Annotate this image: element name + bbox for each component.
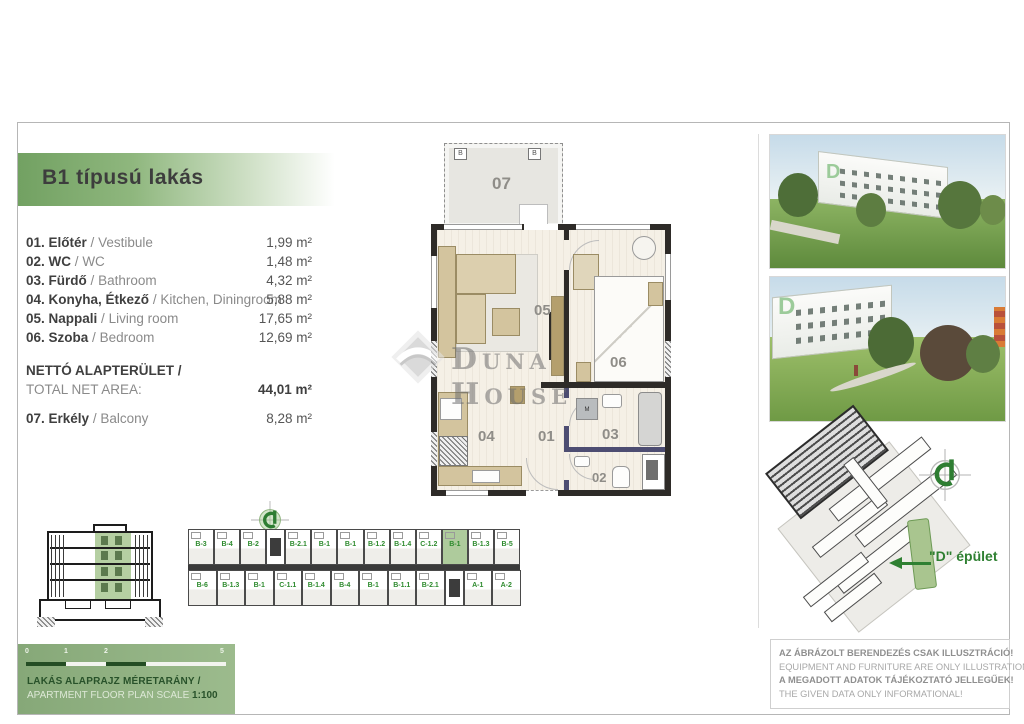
d-building-label: "D" épület xyxy=(929,548,998,564)
room-number-kitchen: 04 xyxy=(478,428,495,445)
room-area: 12,69 m² xyxy=(259,328,312,347)
scale-tick: 1 xyxy=(64,648,68,655)
stove xyxy=(439,436,468,466)
site-plan: "D" épület xyxy=(763,423,991,635)
sofa-seat xyxy=(456,254,516,294)
unit-cell: B-1.1 xyxy=(388,570,417,606)
room-number-wc: 02 xyxy=(592,470,606,485)
column-divider xyxy=(758,134,759,628)
building-d-letter: D xyxy=(826,161,840,184)
unit-label: B-1.2 xyxy=(365,541,389,548)
room-number-bathroom: 03 xyxy=(602,426,619,443)
tall-cabinet xyxy=(510,386,525,404)
unit-label: B-1.1 xyxy=(389,582,416,589)
room-label-hu: 01. Előtér xyxy=(26,235,87,250)
tree xyxy=(856,193,886,227)
unit-cell: B-4 xyxy=(331,570,360,606)
separator: / xyxy=(92,330,96,345)
tv-cabinet xyxy=(551,296,564,376)
room-label-hu: 06. Szoba xyxy=(26,330,88,345)
disclaimer-box: AZ ÁBRÁZOLT BERENDEZÉS CSAK ILLUSZTRÁCIÓ… xyxy=(770,639,1010,709)
window xyxy=(444,224,522,230)
separator: / xyxy=(93,411,97,426)
room-number-bedroom: 06 xyxy=(610,354,627,371)
tree xyxy=(868,317,914,369)
unit-cell: B-6 xyxy=(188,570,217,606)
room-area: 1,48 m² xyxy=(266,252,312,271)
window xyxy=(431,256,437,308)
sofa-back xyxy=(438,246,456,358)
unit-cell: B-1.4 xyxy=(390,529,416,565)
unit-label: B-1.4 xyxy=(303,582,330,589)
partition-wall xyxy=(564,480,569,490)
balcony-row: 07. Erkély / Balcony 8,28 m² xyxy=(26,409,312,428)
unit-label: B-2.1 xyxy=(286,541,310,548)
stairwell-cell xyxy=(445,570,464,606)
room-area: 1,99 m² xyxy=(266,233,312,252)
scale-caption-en: APARTMENT FLOOR PLAN SCALE 1:100 xyxy=(27,690,218,701)
bathroom-sink xyxy=(602,394,622,408)
unit-cell-highlighted: B-1 xyxy=(442,529,468,565)
unit-label: A-2 xyxy=(493,582,520,589)
building-render-photo-1: D xyxy=(769,134,1006,269)
partition-wall xyxy=(564,388,569,398)
toilet xyxy=(612,466,630,488)
disclaimer-line: EQUIPMENT AND FURNITURE ARE ONLY ILLUSTR… xyxy=(779,661,1001,675)
room-label-hu: 02. WC xyxy=(26,254,71,269)
unit-cell: A-2 xyxy=(492,570,521,606)
window xyxy=(446,490,488,496)
separator: / xyxy=(75,254,79,269)
garage-door xyxy=(65,601,91,609)
unit-cell: B-2.1 xyxy=(416,570,445,606)
total-area-value: 44,01 m² xyxy=(258,380,312,399)
strip-top-row: B-3 B-4 B-2 B-2.1 B-1 B-1 B-1.2 B-1.4 C-… xyxy=(188,529,520,565)
room-row: 06. Szoba / Bedroom12,69 m² xyxy=(26,328,312,347)
room-row: 01. Előtér / Vestibule1,99 m² xyxy=(26,233,312,252)
wall-section-hatch xyxy=(665,341,671,377)
unit-label: B-3 xyxy=(189,541,213,548)
unit-cell: A-1 xyxy=(464,570,493,606)
sofa-chaise xyxy=(456,294,486,344)
room-number-balcony: 07 xyxy=(492,174,511,194)
unit-label: B-1.3 xyxy=(218,582,245,589)
room-label-en: Bedroom xyxy=(100,330,155,345)
stairwell-cell xyxy=(266,529,285,565)
unit-label: A-1 xyxy=(465,582,492,589)
unit-cell: B-2.1 xyxy=(285,529,311,565)
balcony-label-en: Balcony xyxy=(100,411,148,426)
strip-bottom-row: B-6 B-1.3 B-1 C-1.1 B-1.4 B-4 B-1 B-1.1 … xyxy=(188,570,520,606)
room-label-en: Vestibule xyxy=(98,235,153,250)
window xyxy=(576,224,650,230)
unit-cell: B-5 xyxy=(494,529,520,565)
unit-cell: B-1 xyxy=(337,529,363,565)
room-number-vestibule: 01 xyxy=(538,428,555,445)
unit-cell: B-1.4 xyxy=(302,570,331,606)
header-band: B1 típusú lakás xyxy=(18,153,348,206)
unit-cell: B-1 xyxy=(311,529,337,565)
wc-sink xyxy=(574,456,590,467)
room-label-hu: 03. Fürdő xyxy=(26,273,87,288)
wall-section-hatch xyxy=(431,432,437,466)
section-marker: B xyxy=(528,148,541,160)
unit-label: B-1 xyxy=(360,582,387,589)
room-row: 04. Konyha, Étkező / Kitchen, Diningroom… xyxy=(26,290,312,309)
tree xyxy=(980,195,1006,225)
disclaimer-line: A MEGADOTT ADATOK TÁJÉKOZTATÓ JELLEGŰEK! xyxy=(779,674,1001,688)
pillow xyxy=(648,282,663,306)
room-label-en: WC xyxy=(82,254,105,269)
separator: / xyxy=(91,273,95,288)
entry-door-opening xyxy=(526,490,558,497)
room-label-en: Bathroom xyxy=(98,273,157,288)
tv xyxy=(549,312,551,360)
separator: / xyxy=(153,292,157,307)
unit-label: B-2.1 xyxy=(417,582,444,589)
unit-label: B-1 xyxy=(443,541,467,548)
room-area: 4,32 m² xyxy=(266,271,312,290)
unit-cell: C-1.2 xyxy=(416,529,442,565)
tree xyxy=(966,335,1000,373)
building-render-photo-2: D xyxy=(769,276,1006,422)
brochure-page: B1 típusú lakás 01. Előtér / Vestibule1,… xyxy=(17,122,1010,715)
green-window xyxy=(115,583,122,592)
total-label-hu: NETTÓ ALAPTERÜLET / xyxy=(26,361,312,380)
room-label-hu: 04. Konyha, Étkező xyxy=(26,292,149,307)
room-row: 05. Nappali / Living room17,65 m² xyxy=(26,309,312,328)
tree xyxy=(778,173,818,217)
green-window xyxy=(115,567,122,576)
unit-cell: B-1.3 xyxy=(217,570,246,606)
unit-label: B-4 xyxy=(215,541,239,548)
unit-label: B-1 xyxy=(338,541,362,548)
balcony-door-opening xyxy=(524,224,558,230)
roof-stub xyxy=(93,524,127,533)
room-area: 5,88 m² xyxy=(266,290,312,309)
armchair xyxy=(632,236,656,260)
room-list: 01. Előtér / Vestibule1,99 m² 02. WC / W… xyxy=(26,233,312,347)
building-section-drawing xyxy=(39,523,161,627)
scale-bar-panel: 0 1 2 5 LAKÁS ALAPRAJZ MÉRETARÁNY / APAR… xyxy=(18,644,235,714)
scale-segment xyxy=(26,662,66,666)
shaft-duct xyxy=(646,460,658,480)
unit-label: B-6 xyxy=(189,582,216,589)
room-label-en: Living room xyxy=(109,311,179,326)
room-number-living: 05 xyxy=(534,302,551,319)
unit-label: C-1.2 xyxy=(417,541,441,548)
unit-label: B-1 xyxy=(246,582,273,589)
green-window xyxy=(101,536,108,545)
partition-wall xyxy=(569,447,665,452)
scale-tick: 0 xyxy=(25,648,29,655)
bathtub xyxy=(638,392,662,446)
unit-cell: B-1 xyxy=(245,570,274,606)
north-compass-icon xyxy=(919,449,971,501)
window xyxy=(665,254,671,300)
unit-label: B-1.4 xyxy=(391,541,415,548)
unit-label: B-2 xyxy=(241,541,265,548)
room-row: 02. WC / WC1,48 m² xyxy=(26,252,312,271)
unit-cell: B-2 xyxy=(240,529,266,565)
wall xyxy=(564,270,569,386)
window-column xyxy=(51,535,65,597)
page-title: B1 típusú lakás xyxy=(42,166,204,190)
dishwasher xyxy=(472,470,500,483)
wall-section-hatch xyxy=(431,341,437,377)
wall xyxy=(564,230,569,240)
scale-segment xyxy=(146,662,226,666)
total-label-en: TOTAL NET AREA: xyxy=(26,382,142,397)
unit-cell: B-1 xyxy=(359,570,388,606)
unit-label: B-1.3 xyxy=(469,541,493,548)
bench xyxy=(576,362,591,382)
unit-cell: B-3 xyxy=(188,529,214,565)
green-window xyxy=(115,551,122,560)
apartment-floor-plan: B B 07 M xyxy=(426,136,676,508)
room-row: 03. Fürdő / Bathroom4,32 m² xyxy=(26,271,312,290)
scale-tick: 5 xyxy=(220,648,224,655)
balcony-label-hu: 07. Erkély xyxy=(26,411,89,426)
basement-level xyxy=(39,599,161,621)
green-window xyxy=(101,583,108,592)
unit-label: B-5 xyxy=(495,541,519,548)
scale-tick: 2 xyxy=(104,648,108,655)
tree xyxy=(938,181,982,229)
unit-label: C-1.1 xyxy=(275,582,302,589)
kitchen-sink xyxy=(440,398,462,420)
ground-hatch xyxy=(145,617,163,627)
disclaimer-line: AZ ÁBRÁZOLT BERENDEZÉS CSAK ILLUSZTRÁCIÓ… xyxy=(779,647,1001,661)
d-building-arrow-stem xyxy=(901,562,931,565)
window-column xyxy=(135,535,149,597)
scale-segment xyxy=(66,662,106,666)
washing-machine: M xyxy=(576,398,598,420)
separator: / xyxy=(101,311,105,326)
unit-label: B-1 xyxy=(312,541,336,548)
scale-caption-en-text: APARTMENT FLOOR PLAN SCALE xyxy=(27,690,189,701)
room-label-en: Kitchen, Diningroom xyxy=(160,292,282,307)
room-area: 17,65 m² xyxy=(259,309,312,328)
unit-label: B-4 xyxy=(332,582,359,589)
section-marker: B xyxy=(454,148,467,160)
green-window xyxy=(115,536,122,545)
unit-cell: B-4 xyxy=(214,529,240,565)
green-window xyxy=(101,567,108,576)
floor-overview-strip: B-3 B-4 B-2 B-2.1 B-1 B-1 B-1.2 B-1.4 C-… xyxy=(188,529,520,611)
disclaimer-line: THE GIVEN DATA ONLY INFORMATIONAL! xyxy=(779,688,1001,702)
unit-cell: B-1.3 xyxy=(468,529,494,565)
unit-cell: C-1.1 xyxy=(274,570,303,606)
scale-segment xyxy=(106,662,146,666)
unit-cell: B-1.2 xyxy=(364,529,390,565)
room-label-hu: 05. Nappali xyxy=(26,311,97,326)
separator: / xyxy=(91,235,95,250)
person xyxy=(854,365,858,376)
coffee-table xyxy=(492,308,520,336)
scale-caption-hu: LAKÁS ALAPRAJZ MÉRETARÁNY / xyxy=(27,676,201,687)
garage-door xyxy=(105,601,131,609)
balcony-area: 8,28 m² xyxy=(266,409,312,428)
green-window xyxy=(101,551,108,560)
scale-value: 1:100 xyxy=(192,690,218,701)
ground-hatch xyxy=(37,617,55,627)
total-area-row: NETTÓ ALAPTERÜLET / TOTAL NET AREA:44,01… xyxy=(26,361,312,399)
building-d-letter: D xyxy=(778,293,795,321)
